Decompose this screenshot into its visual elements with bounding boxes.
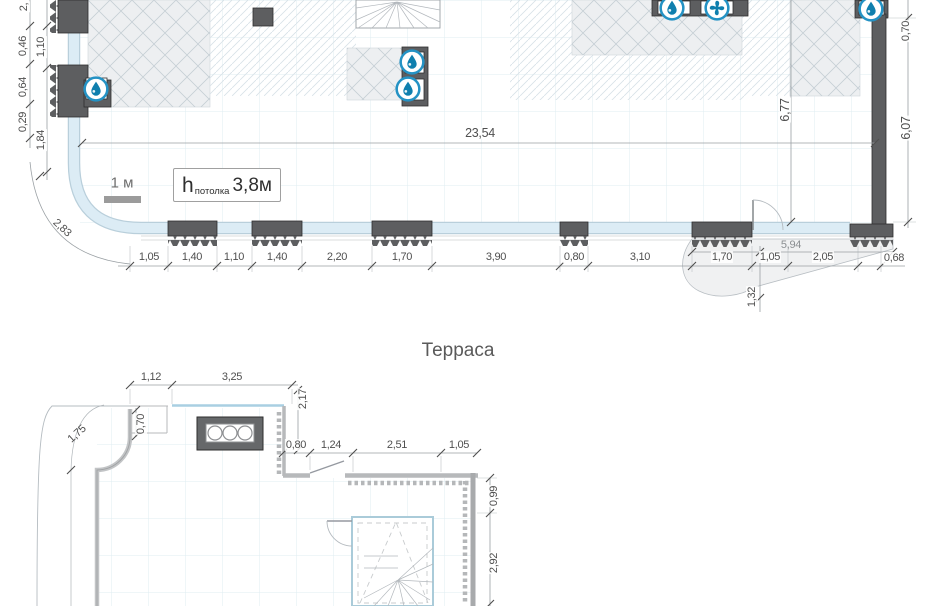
scale-label: 1 м (111, 175, 134, 192)
dim-label: 23,54 (464, 127, 496, 139)
spiral-stair (356, 0, 440, 28)
planter-unit (197, 417, 263, 450)
dim-label: 1,84 (35, 129, 47, 151)
dim-label: 0,64 (17, 76, 29, 98)
dim-label: 3,25 (221, 371, 243, 383)
ceiling-height-box: h потолка 3,8м (173, 168, 281, 202)
water-drop-icon (860, 0, 883, 20)
dim-label: 1,05 (138, 251, 160, 263)
dim-label: 2,92 (488, 552, 500, 574)
water-drop-icon (85, 78, 108, 101)
lower-plan (37, 381, 497, 606)
door-leaf (310, 461, 344, 473)
upper-plan (26, 0, 916, 312)
dim-label: 0,46 (17, 35, 29, 57)
scale-bar (104, 196, 141, 203)
dim-label: 2,51 (386, 439, 408, 451)
dim-label: 2,20 (326, 251, 348, 263)
dim-label: 1,40 (181, 251, 203, 263)
floor-plan-page: 2, 0,46 0,64 0,29 1,10 1,84 2,83 23,54 6… (0, 0, 926, 606)
dim-label: 1,10 (35, 36, 47, 58)
dim-label: 1,10 (223, 251, 245, 263)
plan-title: Терраса (422, 340, 495, 362)
dim-label: 1,12 (140, 371, 162, 383)
ceiling-symbol: h (182, 175, 194, 196)
dim-label: 2, (18, 2, 30, 13)
dim-label: 0,29 (17, 111, 29, 133)
dim-label: 1,24 (320, 439, 342, 451)
dim-label: 0,80 (285, 439, 307, 451)
dim-label: 1,70 (711, 251, 733, 263)
water-drop-icon (397, 78, 420, 101)
fan-icon (706, 0, 729, 19)
water-drop-icon (401, 51, 424, 74)
dim-label: 0,70 (135, 413, 147, 435)
dim-label: 1,70 (391, 251, 413, 263)
dim-label: 6,77 (779, 97, 791, 122)
water-drop-icon (661, 0, 684, 19)
dim-label: 1,05 (448, 439, 470, 451)
dim-label: 1,40 (266, 251, 288, 263)
dim-label: 0,68 (883, 252, 905, 264)
dim-label: 0,99 (488, 485, 500, 507)
dim-label: 1,05 (759, 251, 781, 263)
dim-label: 0,70 (900, 20, 912, 42)
floor-plan-drawing (0, 0, 926, 606)
dim-label: 0,80 (563, 251, 585, 263)
dim-label: 3,90 (485, 251, 507, 263)
dim-label: 2,17 (297, 388, 309, 410)
ceiling-value: 3,8м (232, 176, 271, 195)
dim-label: 5,94 (780, 239, 802, 251)
dim-label: 6,07 (900, 115, 912, 140)
dim-label: 3,10 (629, 251, 651, 263)
dim-label: 1,32 (746, 286, 758, 308)
dim-label: 2,05 (812, 251, 834, 263)
ceiling-subscript: потолка (195, 186, 230, 197)
